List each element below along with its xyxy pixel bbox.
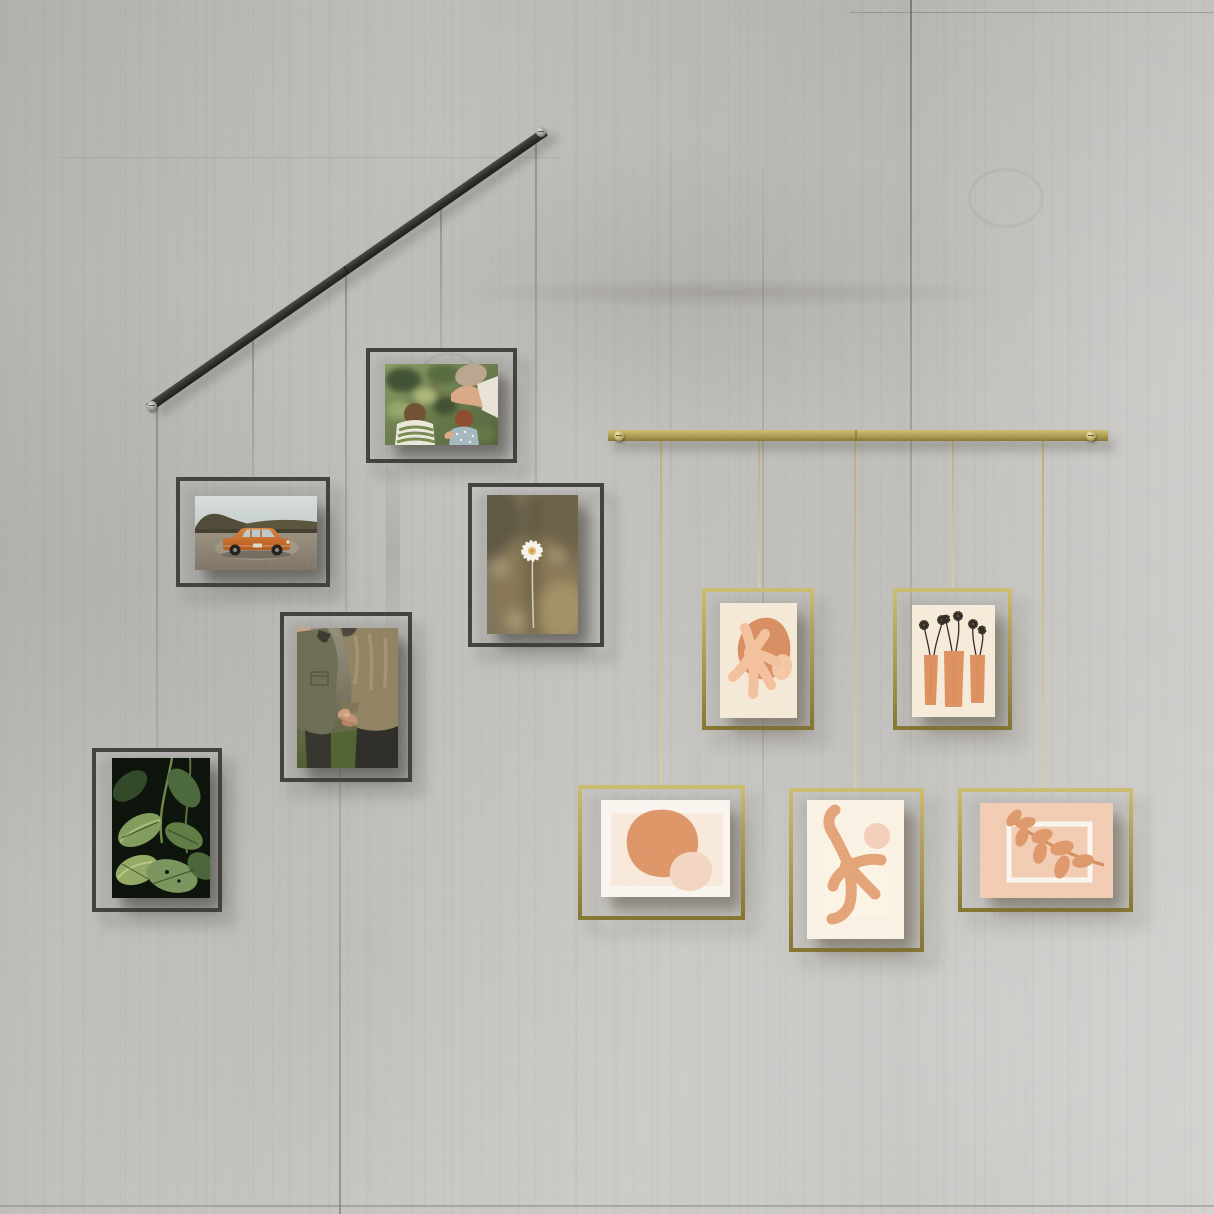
wire-family-garden [440,203,442,348]
wall-seam-vertical-center [762,140,764,900]
wire-daisy [535,137,537,483]
black-rail-joint [343,266,350,275]
print-coral-abstract [720,603,797,718]
wall-seam-horizontal-top [850,12,1214,13]
holding-hands-art [297,628,398,768]
wire-leaf-sprig [1042,441,1044,788]
family-garden-art [385,364,498,445]
wire-holding-hands [345,270,347,612]
vintage-car-art [195,496,317,570]
leaf-sprig-art [980,803,1113,898]
photo-family-garden [385,364,498,445]
print-terracotta-blob [601,800,730,897]
wire-terracotta-blob [660,441,662,785]
print-leaf-sprig [980,803,1113,898]
brass-hanging-rail [608,430,1108,441]
photo-holding-hands [297,628,398,768]
black-rail-screw-left [147,401,157,411]
flower-vases-art [912,605,995,717]
wire-vintage-car [252,334,254,477]
concrete-wall [0,0,1214,1214]
frame-terracotta-blob [578,785,745,920]
brass-rail-screw-right [1086,431,1096,441]
frame-holding-hands [280,612,412,782]
wall-seam-horizontal-bottom [0,1205,1214,1207]
brass-rail-screw-left [614,431,624,441]
green-leaves-art [112,758,210,898]
frame-family-garden [366,348,517,463]
brass-rail-joint [855,430,857,441]
frame-leaf-sprig [958,788,1133,912]
wall-stain-ring-2 [968,168,1044,228]
frame-vintage-car [176,477,330,587]
wall-texture-streaks [0,0,1214,1214]
coral-abstract-art [720,603,797,718]
wall-seam-horizontal-left [60,157,560,158]
daisy-art [487,495,578,634]
photo-daisy [487,495,578,634]
wire-green-leaves [156,402,158,748]
frame-green-leaves [92,748,222,912]
wire-coral-branch [854,441,856,788]
wire-coral-abstract [758,441,760,588]
terracotta-blob-art [601,800,730,897]
print-flower-vases [912,605,995,717]
frame-coral-abstract [702,588,814,730]
frame-coral-branch [789,788,924,952]
photo-vintage-car [195,496,317,570]
wall-stain-band [330,272,1130,314]
frame-daisy [468,483,604,647]
photo-green-leaves [112,758,210,898]
wire-flower-vases [952,441,954,588]
print-coral-branch [807,800,904,939]
coral-branch-art [807,800,904,939]
black-rail-screw-right [536,127,546,137]
frame-flower-vases [893,588,1012,730]
wall-grain-texture [0,0,1214,1214]
